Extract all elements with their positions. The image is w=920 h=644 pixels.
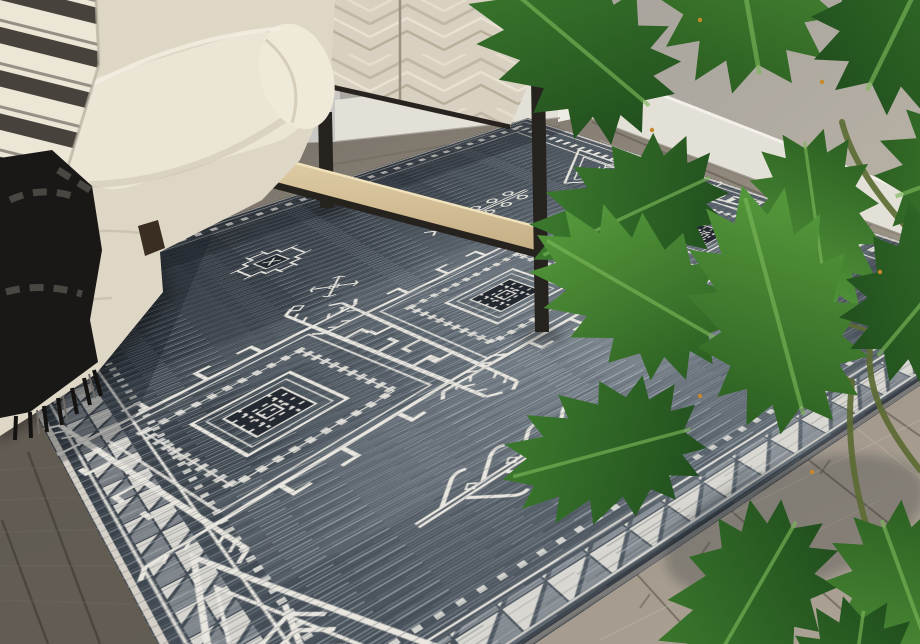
sofa <box>0 0 348 444</box>
throw-blanket <box>0 150 102 440</box>
foreground <box>0 0 920 644</box>
room-scene <box>0 0 920 644</box>
